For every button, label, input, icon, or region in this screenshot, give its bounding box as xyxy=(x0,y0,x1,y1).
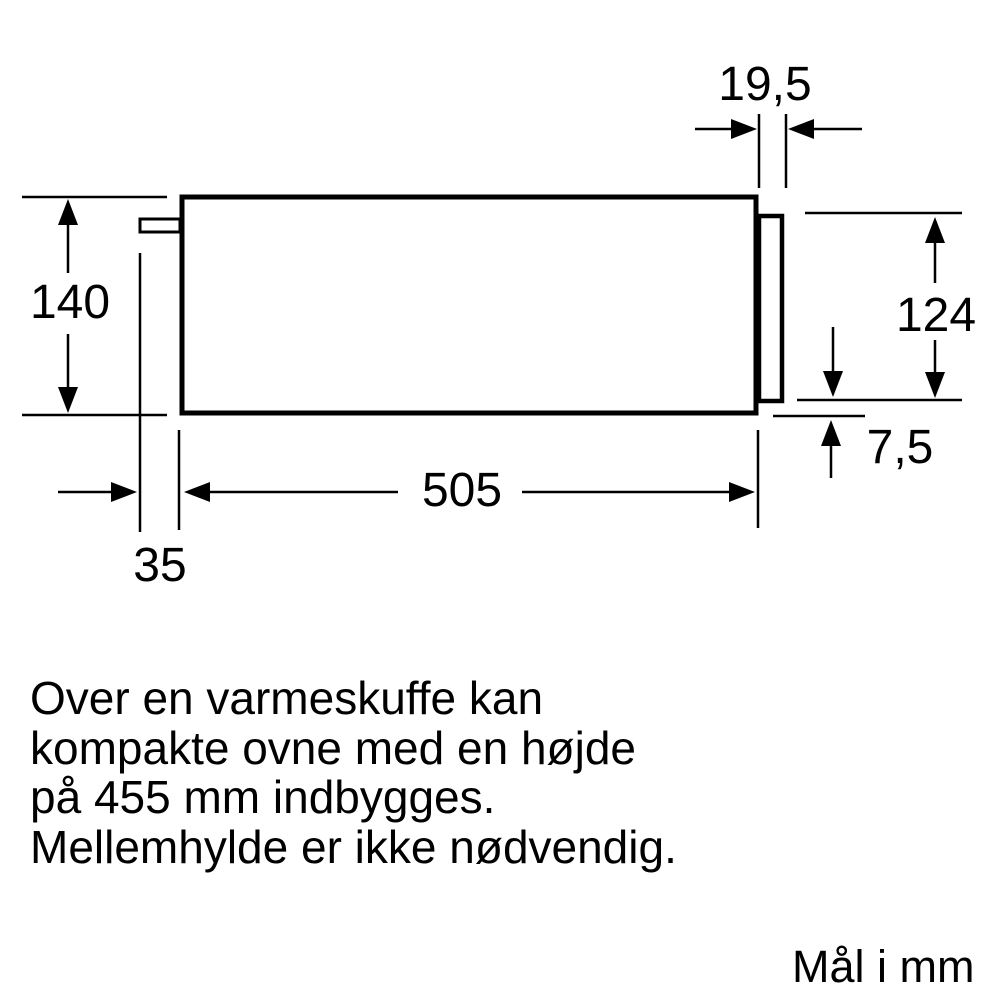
dim-7-5-arrowhead-down xyxy=(823,371,843,397)
dim-label-7-5: 7,5 xyxy=(867,424,934,472)
dim-505-arrowhead-left xyxy=(184,482,210,502)
dim-505-arrowhead-right xyxy=(729,482,755,502)
dim-35-arrowhead-right-pointing xyxy=(111,482,137,502)
appliance-body-outline xyxy=(182,197,756,413)
dim-124-arrowhead-down xyxy=(925,372,945,398)
front-panel-outline xyxy=(759,216,782,401)
dim-140-arrowhead-down xyxy=(58,387,78,413)
dim-label-124: 124 xyxy=(896,292,976,340)
dim-label-35: 35 xyxy=(133,542,186,590)
dim-124-arrowhead-up xyxy=(925,217,945,243)
dim-label-505: 505 xyxy=(422,467,502,515)
dim-label-19-5: 19,5 xyxy=(718,61,811,109)
dimension-drawing-page: 19,5 140 124 7,5 505 35 Over en varmesku… xyxy=(0,0,1000,1000)
dim-140-arrowhead-up xyxy=(58,199,78,225)
rear-connector-tab xyxy=(140,219,180,232)
installation-note-text: Over en varmeskuffe kan kompakte ovne me… xyxy=(30,674,677,872)
dim-7-5-arrowhead-up xyxy=(821,420,841,446)
dim-label-140: 140 xyxy=(30,279,110,327)
dim-19-5-arrowhead-left-pointing xyxy=(788,119,814,139)
dim-19-5-arrowhead-right-pointing xyxy=(731,119,757,139)
units-label: Mål i mm xyxy=(792,944,974,989)
